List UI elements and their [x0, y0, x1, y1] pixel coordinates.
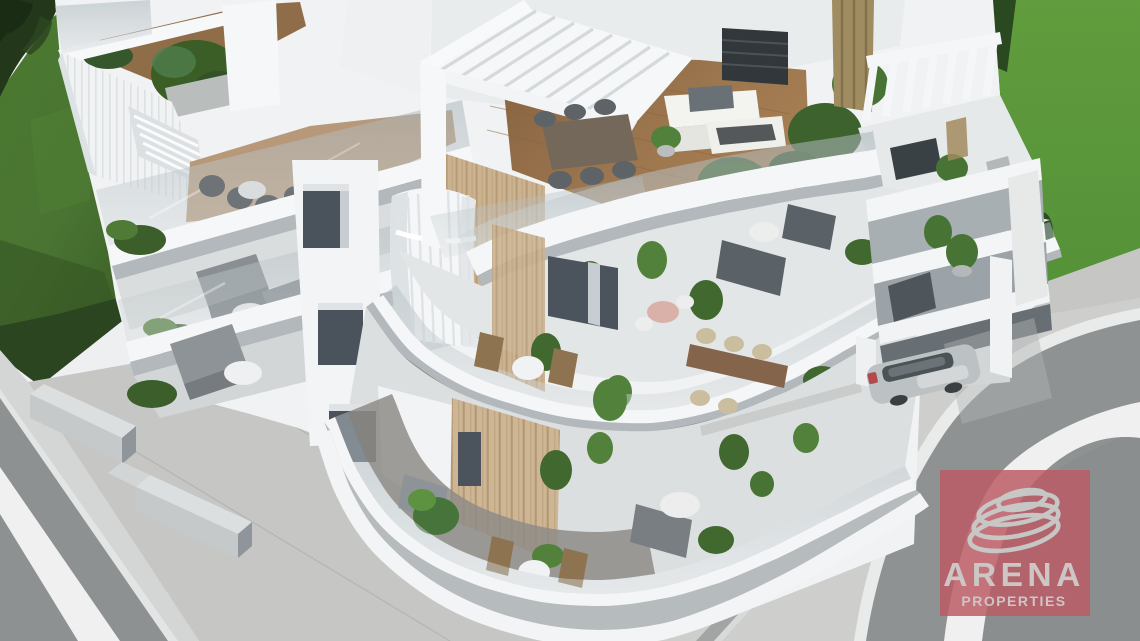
svg-text:PROPERTIES: PROPERTIES: [961, 593, 1066, 609]
svg-text:ARENA: ARENA: [943, 557, 1085, 594]
